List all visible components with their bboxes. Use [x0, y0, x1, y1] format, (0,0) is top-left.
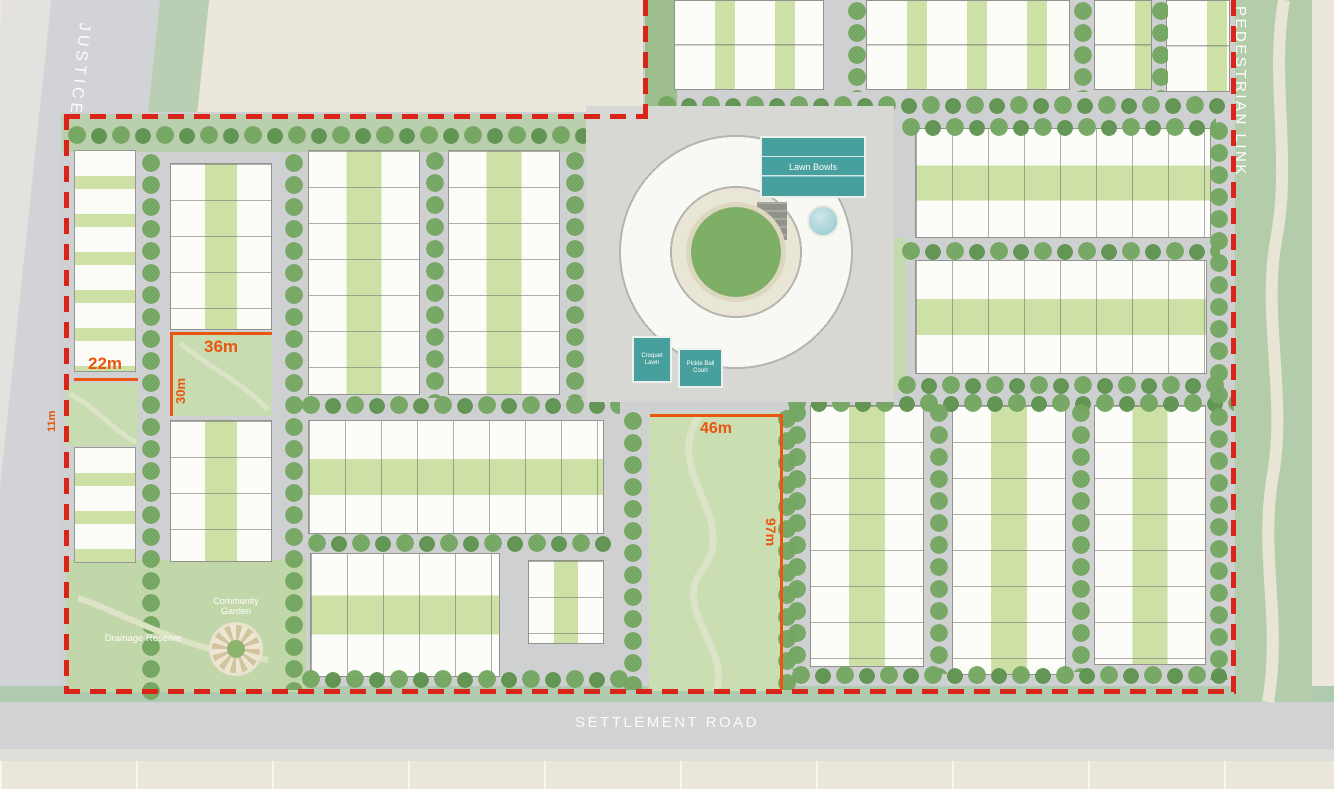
mid-row-block-1 [308, 420, 604, 534]
north-block-1 [674, 0, 824, 90]
southeast-block-2 [952, 405, 1066, 675]
pickle-ball-court: Pickle Ball Court [678, 348, 723, 388]
dim-label-30m: 30m [174, 378, 189, 404]
east-row-block-1 [915, 128, 1211, 238]
dim-label-46m: 46m [666, 420, 766, 438]
boundary-south [64, 689, 1236, 694]
bottom-left-park [66, 560, 306, 692]
upper-left-block-1 [170, 163, 272, 330]
street-trees-3 [424, 150, 446, 398]
street-trees-9 [900, 240, 1220, 262]
street-trees-16 [790, 664, 1230, 688]
north-block-2 [866, 0, 1070, 90]
street-trees-4 [564, 150, 586, 398]
north-block-4 [1166, 0, 1230, 92]
street-trees-18 [1072, 0, 1092, 92]
street-trees-13 [928, 402, 948, 674]
drainage-reserve-label: Drainage Reserve [104, 634, 182, 645]
dim-line-97m [780, 414, 783, 690]
southeast-block-1 [810, 405, 924, 667]
street-trees-1 [140, 152, 162, 702]
upper-left-block-3 [448, 150, 560, 395]
upper-left-block-2 [308, 150, 420, 395]
community-garden-label: Community Garden [201, 596, 271, 617]
boundary-north-upper [643, 0, 648, 116]
north-block-3 [1094, 0, 1152, 90]
settlement-road-label: SETTLEMENT ROAD [0, 714, 1334, 731]
dim-line-22m [74, 378, 138, 381]
dim-label-36m: 36m [186, 337, 256, 357]
west-strip-lower [74, 447, 136, 563]
southeast-block-3 [1094, 405, 1206, 665]
boundary-north [64, 114, 648, 119]
east-row-block-2 [915, 260, 1207, 374]
mid-left-block [170, 420, 272, 562]
south-lots [0, 761, 1334, 789]
dim-label-97m: 97m [763, 518, 779, 546]
street-trees-0 [66, 124, 646, 148]
street-trees-2 [283, 152, 305, 690]
site-plan: JUSTICE ROAD PEDESTRIAN LINK SETTLEMENT … [0, 0, 1334, 789]
street-trees-19 [1150, 0, 1168, 92]
pool [807, 205, 839, 237]
street-trees-6 [306, 532, 616, 554]
street-trees-21 [622, 410, 644, 690]
street-trees-14 [1070, 402, 1090, 672]
lawn-bowls-green: Lawn Bowls [760, 136, 866, 198]
mid-small-block [528, 560, 604, 644]
dim-line-36m [170, 332, 272, 335]
croquet-lawn: Croquet Lawn [632, 336, 672, 383]
west-strip-upper [74, 150, 136, 372]
small-left-park [66, 383, 138, 446]
central-park [649, 413, 784, 691]
courtyard-trees [691, 207, 781, 297]
mid-row-block-2 [310, 553, 500, 677]
community-garden-center [227, 640, 245, 658]
street-trees-5 [300, 394, 620, 416]
street-trees-8 [900, 116, 1216, 138]
pedestrian-link-label: PEDESTRIAN LINK [1232, 6, 1249, 177]
dim-label-22m: 22m [70, 354, 140, 374]
street-trees-17 [846, 0, 866, 92]
dim-line-46m [650, 414, 782, 417]
dim-label-11m: 11m [46, 411, 59, 432]
street-trees-7 [300, 668, 630, 690]
boundary-west [64, 114, 69, 694]
street-trees-15 [1208, 120, 1230, 680]
